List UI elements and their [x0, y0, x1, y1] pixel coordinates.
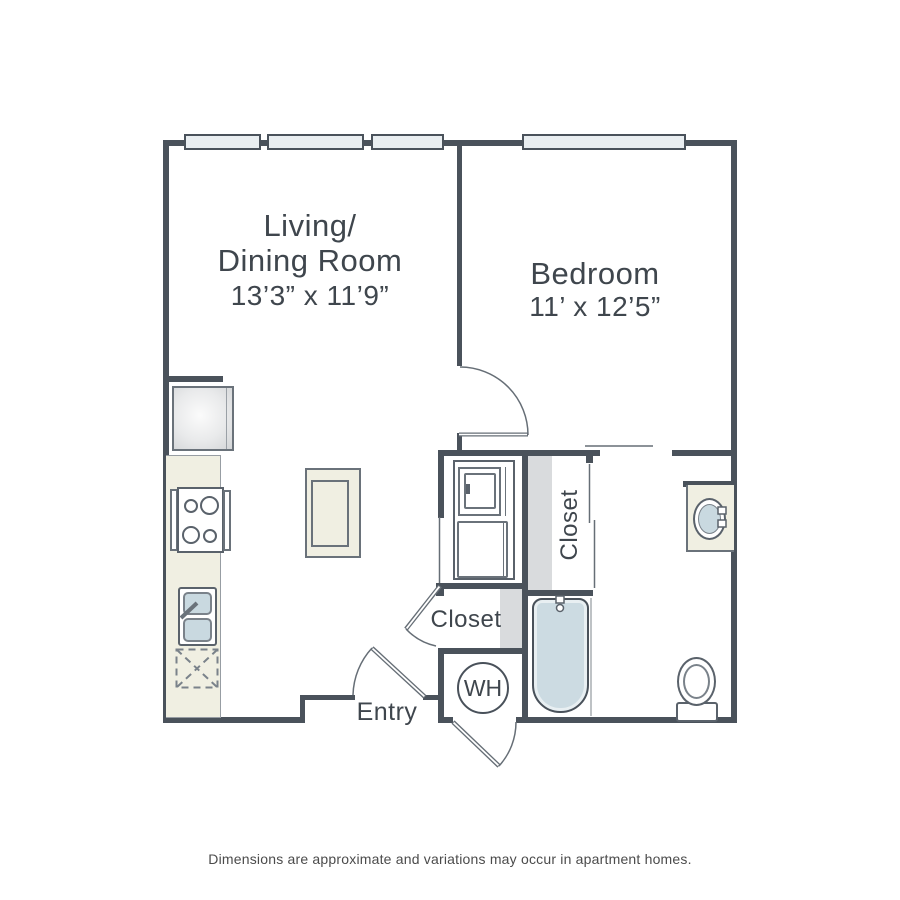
tub-faucet-base: [556, 596, 564, 603]
vanity-faucet-2: [718, 520, 726, 527]
entry-door-arc: [353, 648, 372, 695]
floor-plan: Living/ Dining Room 13’3” x 11’9” Bedroo…: [0, 0, 900, 900]
dishwasher: [177, 650, 218, 688]
wh-door-arc: [499, 722, 516, 766]
kitchen-faucet: [181, 603, 197, 618]
bedroom-dimensions: 11’ x 12’5”: [445, 291, 745, 323]
entry-label: Entry: [337, 698, 437, 727]
bedroom-label: Bedroom: [445, 256, 745, 292]
disclaimer-text: Dimensions are approximate and variation…: [0, 851, 900, 867]
water-heater-label: WH: [464, 675, 502, 702]
living-room-label-line2: Dining Room: [160, 243, 460, 279]
door-swing-overlay: [0, 0, 900, 900]
vanity-faucet-1: [718, 507, 726, 514]
bedroom-door-arc: [460, 367, 528, 435]
water-heater: WH: [457, 662, 509, 714]
living-room-dimensions: 13’3” x 11’9”: [160, 280, 460, 312]
hall-closet-label: Closet: [416, 606, 516, 634]
living-room-label-line1: Living/: [160, 208, 460, 244]
tub-faucet: [557, 605, 564, 612]
bedroom-closet-label: Closet: [556, 475, 584, 575]
